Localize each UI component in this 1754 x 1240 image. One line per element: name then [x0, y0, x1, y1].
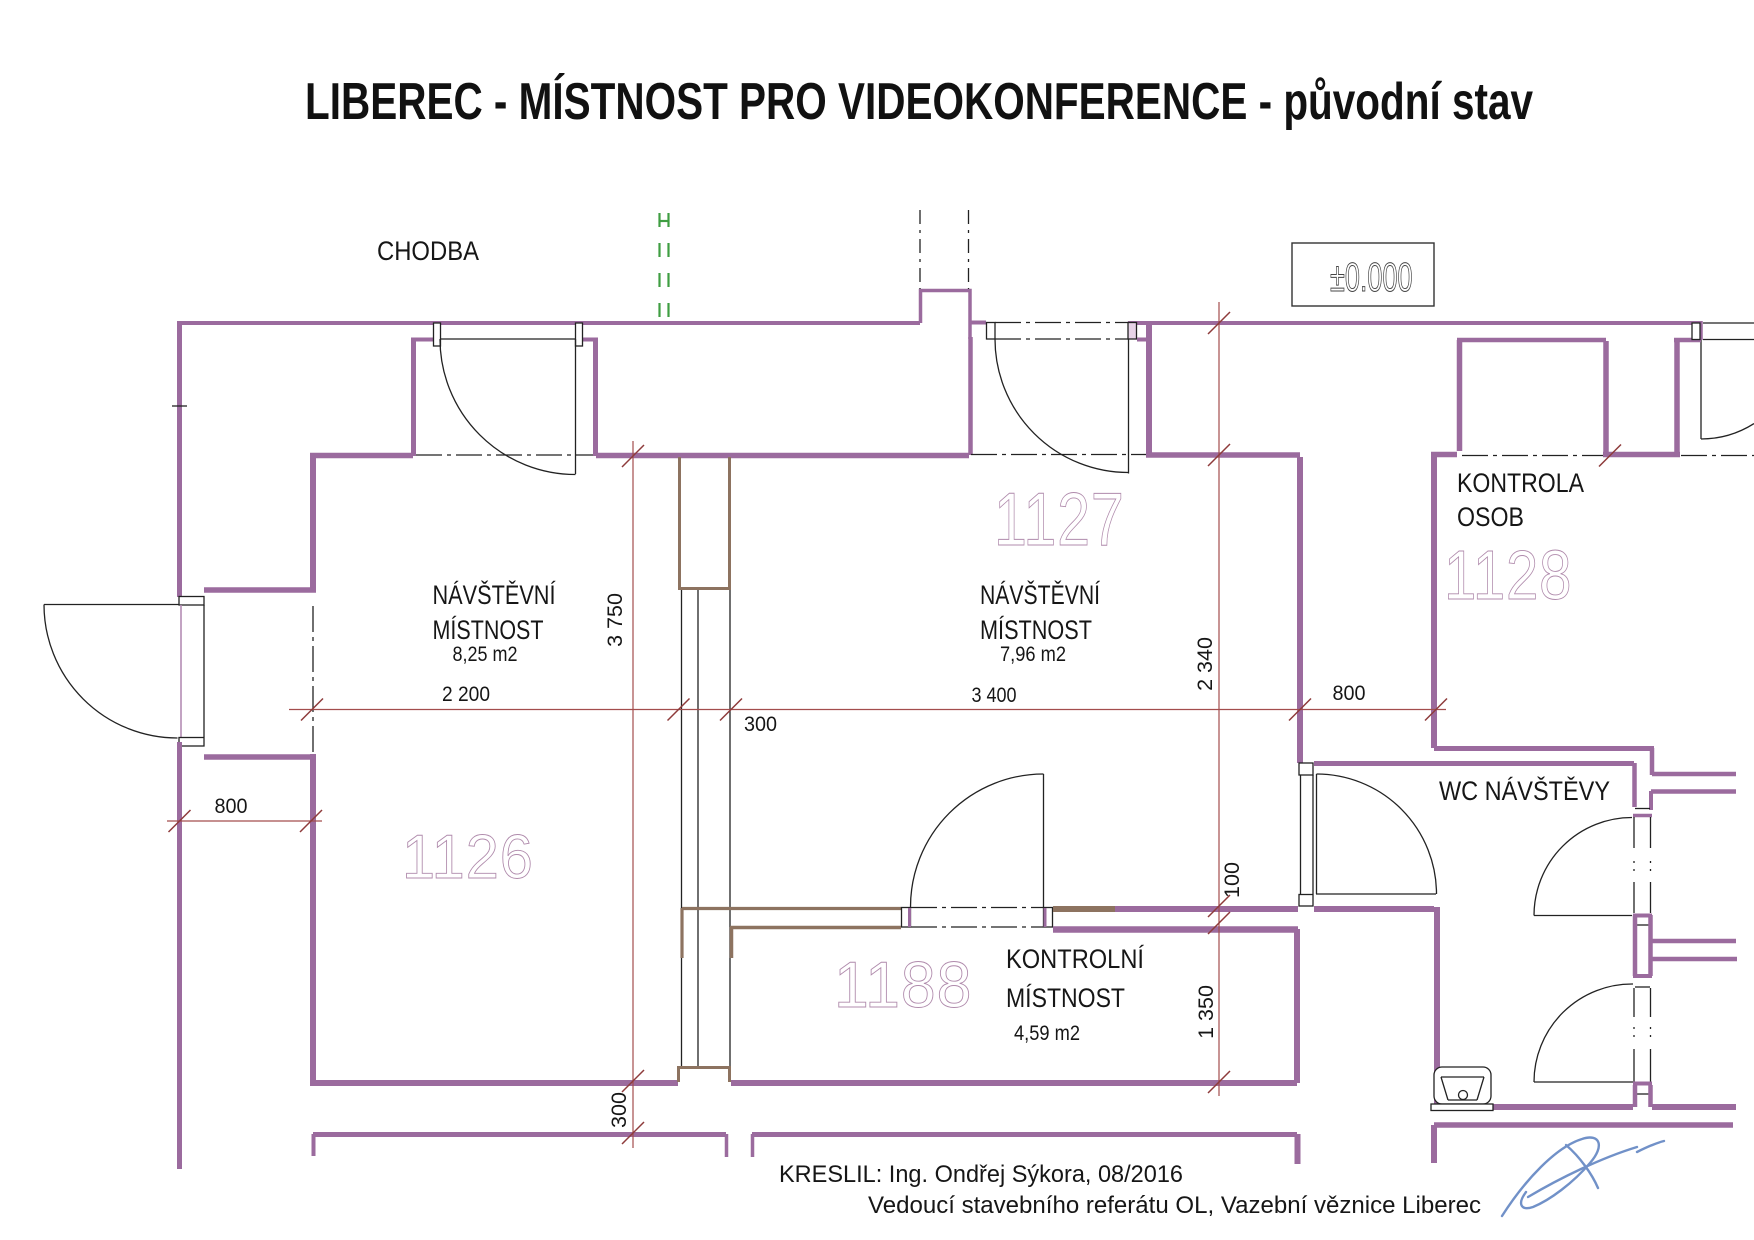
svg-text:MÍSTNOST: MÍSTNOST	[980, 615, 1092, 645]
svg-text:OSOB: OSOB	[1457, 502, 1524, 532]
svg-text:1127: 1127	[994, 478, 1125, 561]
svg-text:1126: 1126	[402, 822, 534, 891]
svg-text:2 340: 2 340	[1193, 637, 1217, 691]
svg-text:3 400: 3 400	[972, 683, 1017, 707]
svg-text:300: 300	[607, 1092, 631, 1128]
svg-text:2 200: 2 200	[442, 682, 490, 706]
svg-text:8,25 m2: 8,25 m2	[453, 642, 518, 666]
svg-text:KONTROLNÍ: KONTROLNÍ	[1006, 944, 1144, 974]
svg-text:KONTROLA: KONTROLA	[1457, 468, 1584, 498]
svg-text:800: 800	[215, 794, 248, 818]
svg-text:±0.000: ±0.000	[1330, 256, 1413, 301]
svg-text:4,59 m2: 4,59 m2	[1014, 1021, 1080, 1045]
svg-text:1 350: 1 350	[1194, 985, 1218, 1039]
svg-text:NÁVŠTĚVNÍ: NÁVŠTĚVNÍ	[980, 579, 1100, 610]
svg-text:Vedoucí stavebního referátu OL: Vedoucí stavebního referátu OL, Vazební …	[868, 1192, 1481, 1219]
svg-text:300: 300	[744, 712, 777, 736]
svg-text:100: 100	[1220, 862, 1244, 898]
svg-text:NÁVŠTĚVNÍ: NÁVŠTĚVNÍ	[433, 579, 556, 610]
svg-text:MÍSTNOST: MÍSTNOST	[1006, 983, 1125, 1013]
svg-text:1128: 1128	[1444, 536, 1572, 614]
svg-text:CHODBA: CHODBA	[377, 236, 479, 266]
svg-text:WC NÁVŠTĚVY: WC NÁVŠTĚVY	[1439, 775, 1610, 806]
svg-text:7,96 m2: 7,96 m2	[1000, 642, 1066, 666]
svg-text:MÍSTNOST: MÍSTNOST	[433, 615, 544, 645]
svg-text:LIBEREC - MÍSTNOST PRO VIDEOKO: LIBEREC - MÍSTNOST PRO VIDEOKONFERENCE -…	[305, 73, 1533, 131]
svg-text:KRESLIL: Ing. Ondřej Sýkora, 0: KRESLIL: Ing. Ondřej Sýkora, 08/2016	[779, 1161, 1183, 1188]
svg-text:3 750: 3 750	[603, 593, 627, 647]
svg-text:800: 800	[1333, 681, 1366, 705]
svg-text:1188: 1188	[834, 949, 972, 1021]
